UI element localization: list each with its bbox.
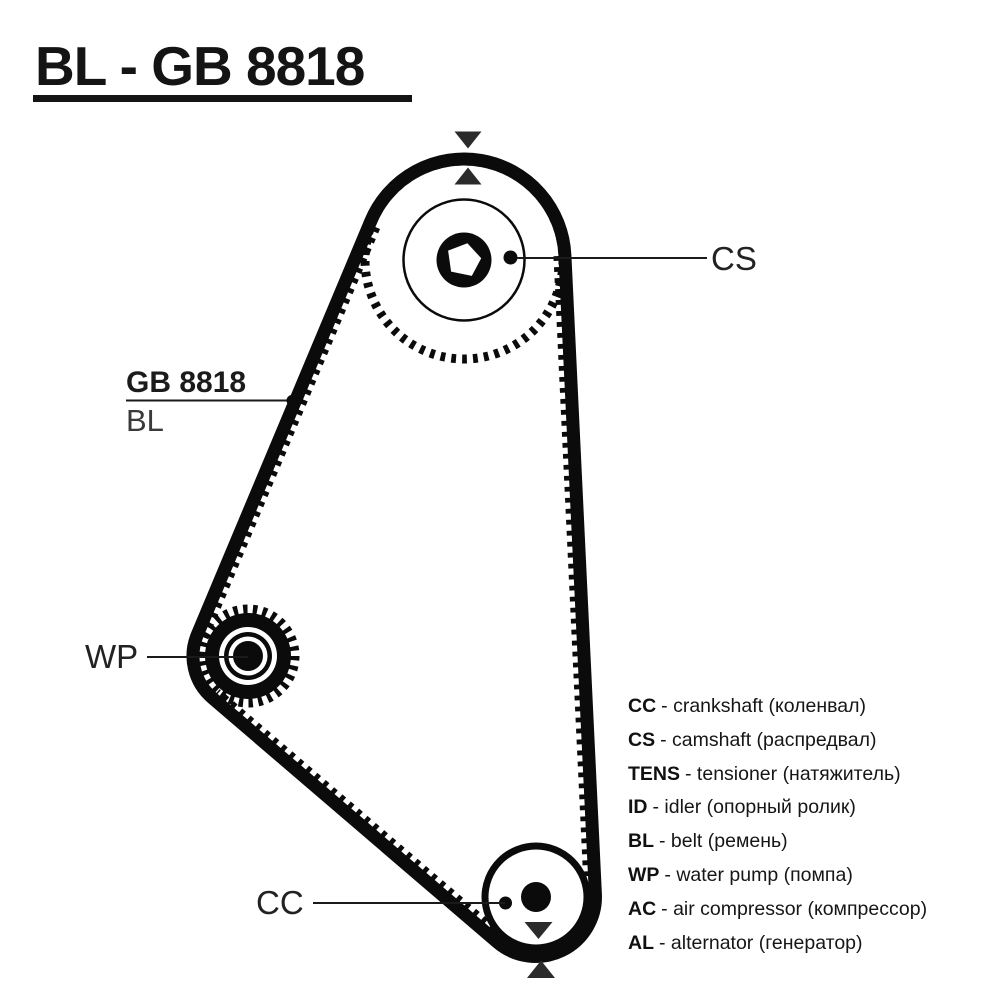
belt-name-label: BL (126, 403, 164, 439)
legend-desc: - water pump (помпа) (664, 864, 852, 886)
legend-item-cc: CC- crankshaft (коленвал) (628, 690, 927, 724)
camshaft-label: CS (711, 240, 757, 278)
legend-item-bl: BL- belt (ремень) (628, 825, 927, 859)
crankshaft-label: CC (256, 884, 304, 922)
water-pump-label: WP (85, 638, 138, 676)
legend-item-al: AL- alternator (генератор) (628, 927, 927, 961)
legend-abbr: CS (628, 729, 655, 751)
title-underline (33, 95, 412, 102)
legend-item-cs: CS- camshaft (распредвал) (628, 724, 927, 758)
legend-abbr: AL (628, 932, 654, 954)
belt-code-label: GB 8818 (126, 366, 246, 400)
legend-abbr: TENS (628, 763, 680, 785)
legend-desc: - idler (опорный ролик) (653, 796, 856, 818)
legend-abbr: ID (628, 796, 648, 818)
legend-abbr: WP (628, 864, 659, 886)
timing-belt (193, 159, 595, 956)
legend: CC- crankshaft (коленвал) CS- camshaft (… (628, 690, 927, 960)
legend-desc: - alternator (генератор) (659, 932, 863, 954)
timing-mark-top-up-icon (455, 168, 482, 185)
belt-callout-dot (287, 395, 298, 406)
legend-desc: - camshaft (распредвал) (660, 729, 876, 751)
legend-abbr: AC (628, 898, 656, 920)
legend-desc: - tensioner (натяжитель) (685, 763, 901, 785)
camshaft-pointer-dot (504, 251, 518, 265)
legend-desc: - crankshaft (коленвал) (661, 695, 866, 717)
legend-item-wp: WP- water pump (помпа) (628, 859, 927, 893)
crankshaft-center (521, 882, 551, 912)
belt-routing-diagram: BL - GB 8818 GB 8818 BL CS WP CC CC- cra… (0, 0, 1001, 1001)
legend-desc: - belt (ремень) (659, 830, 788, 852)
legend-desc: - air compressor (компрессор) (661, 898, 927, 920)
legend-abbr: CC (628, 695, 656, 717)
timing-mark-bottom-up-icon (527, 961, 555, 979)
legend-item-tens: TENS- tensioner (натяжитель) (628, 758, 927, 792)
legend-abbr: BL (628, 830, 654, 852)
timing-mark-top-down-icon (455, 132, 482, 149)
legend-item-ac: AC- air compressor (компрессор) (628, 893, 927, 927)
page-title: BL - GB 8818 (35, 34, 364, 98)
belt-teeth-left-run (205, 224, 379, 638)
legend-item-id: ID- idler (опорный ролик) (628, 791, 927, 825)
